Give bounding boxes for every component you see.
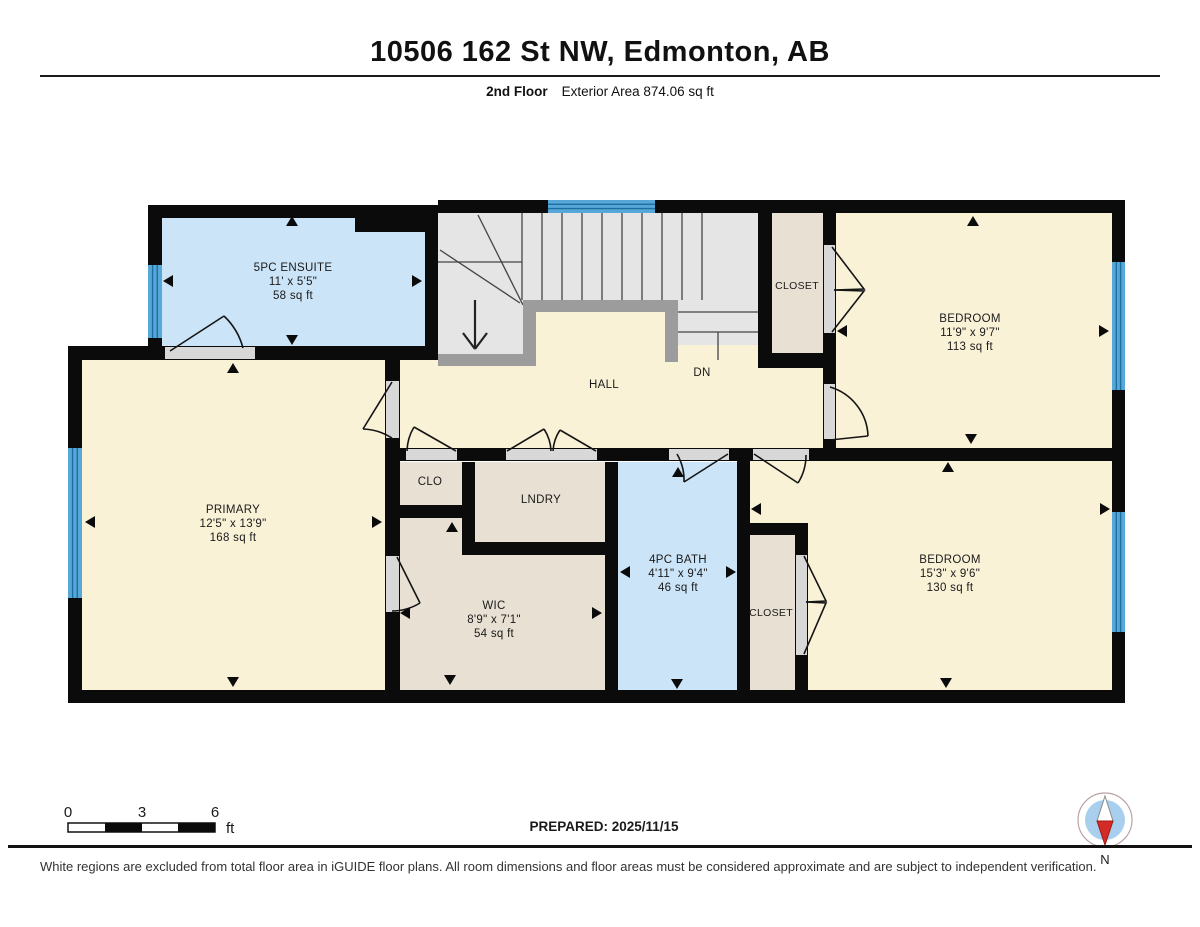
hall-label: HALL [589, 379, 619, 391]
primary-dims: 12'5" x 13'9" [200, 518, 267, 530]
stairs-dn-label: DN [693, 367, 710, 379]
primary-area: 168 sq ft [210, 532, 257, 544]
hall-floor [400, 360, 823, 448]
scale-bar: 0 3 6 ft [64, 804, 235, 837]
window-ensuite-west [148, 265, 162, 338]
closet-ne-label: CLOSET [775, 280, 819, 292]
wic-area: 54 sq ft [474, 628, 515, 640]
ensuite-area: 58 sq ft [273, 290, 314, 302]
scale-tick-3: 3 [138, 804, 146, 821]
bedroom-se-dims: 15'3" x 9'6" [920, 568, 980, 580]
window-stairwell-top [548, 200, 655, 213]
floor-plan-canvas: 5PC ENSUITE 11' x 5'5" 58 sq ft PRIMARY … [0, 0, 1200, 927]
footer-divider [8, 845, 1192, 848]
bath-dims: 4'11" x 9'4" [648, 568, 707, 580]
bath-name: 4PC BATH [649, 554, 707, 566]
ensuite-name: 5PC ENSUITE [254, 262, 333, 274]
bedroom-ne-name: BEDROOM [939, 313, 1001, 325]
bedroom-ne-dims: 11'9" x 9'7" [940, 327, 999, 339]
primary-name: PRIMARY [206, 504, 260, 516]
window-bedroom-ne-east [1112, 262, 1125, 390]
bath-area: 46 sq ft [658, 582, 699, 594]
stair-void [536, 312, 665, 360]
wic-name: WIC [482, 600, 505, 612]
window-bedroom-se-east [1112, 512, 1125, 632]
bedroom-se-area: 130 sq ft [927, 582, 974, 594]
compass: N [1078, 793, 1132, 867]
prepared-date: PREPARED: 2025/11/15 [529, 819, 679, 834]
scale-tick-6: 6 [211, 804, 219, 821]
ensuite-dims: 11' x 5'5" [269, 276, 317, 288]
scale-unit: ft [226, 820, 235, 837]
closet-se-label: CLOSET [749, 607, 793, 619]
bedroom-ne-area: 113 sq ft [947, 341, 993, 353]
clo-label: CLO [418, 476, 443, 488]
bedroom-se-name: BEDROOM [919, 554, 981, 566]
laundry-label: LNDRY [521, 494, 561, 506]
scale-tick-0: 0 [64, 804, 72, 821]
wic-dims: 8'9" x 7'1" [467, 614, 521, 626]
disclaimer-text: White regions are excluded from total fl… [40, 859, 1180, 874]
window-primary-west [68, 448, 82, 598]
